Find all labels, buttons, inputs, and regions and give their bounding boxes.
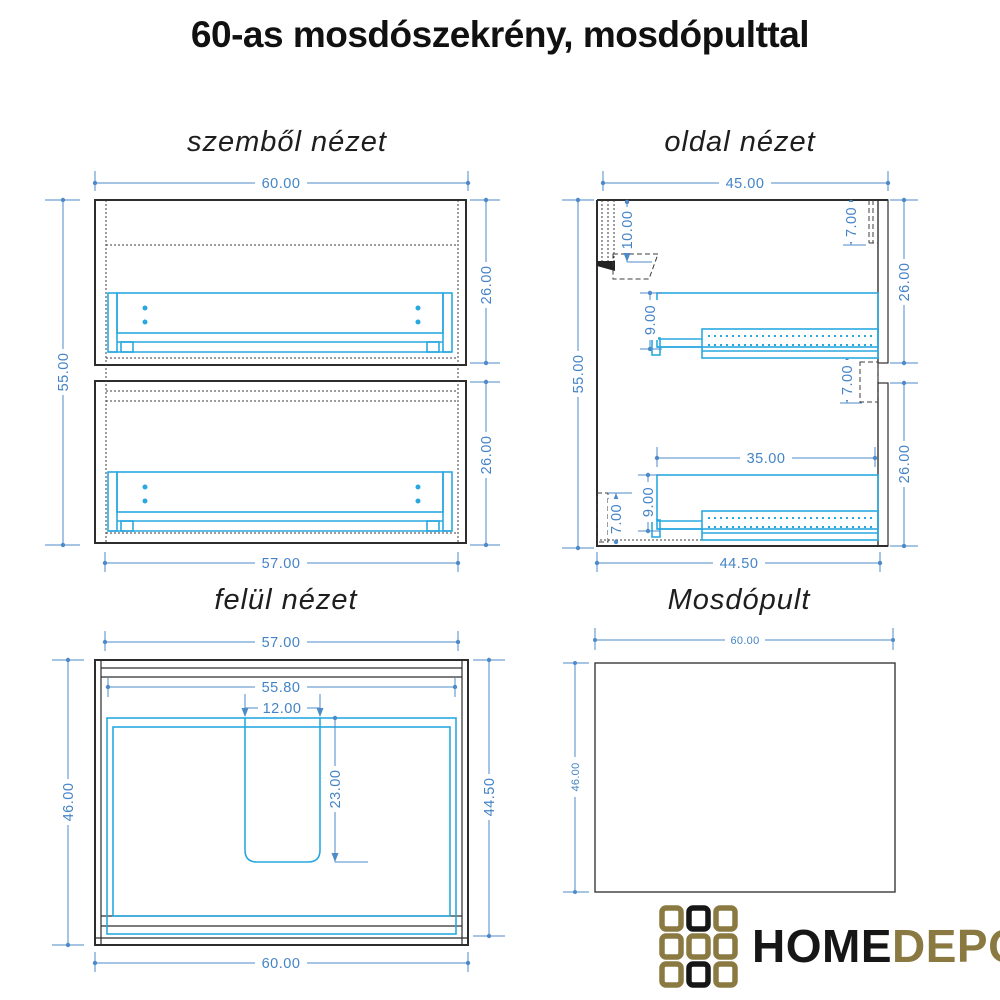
front-dim-width-bottom: 57.00 bbox=[103, 552, 460, 572]
side-dim-bottom-inset: 7.00 bbox=[608, 493, 632, 544]
svg-text:26.00: 26.00 bbox=[479, 436, 495, 475]
page: 60-as mosdószekrény, mosdópulttal szembő… bbox=[0, 0, 1000, 1000]
top-drawer-inner bbox=[113, 727, 450, 916]
top-drawer-outer bbox=[107, 718, 456, 934]
front-view-drawing: 60.00 55.00 26.00 bbox=[45, 171, 500, 572]
side-dim-top-inset: 7.00 bbox=[843, 200, 866, 245]
svg-text:9.00: 9.00 bbox=[643, 305, 659, 335]
svg-text:23.00: 23.00 bbox=[328, 770, 344, 809]
counter-view-drawing: 60.00 46.00 bbox=[563, 628, 895, 894]
top-dim-cutout-width: 12.00 bbox=[242, 694, 324, 717]
side-dim-height-left: 55.00 bbox=[562, 198, 594, 550]
logo-text: HOMEDEPO bbox=[752, 919, 1000, 973]
svg-text:46.00: 46.00 bbox=[570, 762, 582, 791]
counter-dim-width-top: 60.00 bbox=[593, 628, 895, 650]
svg-text:12.00: 12.00 bbox=[263, 701, 302, 717]
svg-text:26.00: 26.00 bbox=[479, 266, 495, 305]
svg-text:60.00: 60.00 bbox=[262, 956, 301, 972]
svg-text:44.50: 44.50 bbox=[720, 556, 759, 572]
front-dim-drawer-upper: 26.00 bbox=[470, 198, 500, 365]
top-dim-cutout-depth: 23.00 bbox=[327, 716, 368, 862]
top-view-drawing: 57.00 55.80 12.00 bbox=[52, 631, 505, 972]
top-dim-width-top: 57.00 bbox=[103, 631, 460, 651]
svg-text:44.50: 44.50 bbox=[482, 778, 498, 817]
svg-text:7.00: 7.00 bbox=[840, 365, 856, 395]
front-lower-drawer-slide bbox=[108, 472, 452, 531]
logo-text-depo: DEPO bbox=[892, 920, 1000, 972]
side-upper-drawer bbox=[652, 293, 878, 358]
svg-text:46.00: 46.00 bbox=[61, 783, 77, 822]
front-upper-carcass bbox=[95, 200, 466, 365]
counter-slab bbox=[595, 663, 895, 892]
svg-text:57.00: 57.00 bbox=[262, 635, 301, 651]
logo-grid-icon bbox=[658, 904, 739, 988]
front-upper-drawer-slide bbox=[108, 293, 452, 352]
svg-text:9.00: 9.00 bbox=[641, 487, 657, 517]
svg-text:57.00: 57.00 bbox=[262, 556, 301, 572]
front-dim-drawer-lower: 26.00 bbox=[470, 380, 500, 547]
logo-text-home: HOME bbox=[752, 920, 892, 972]
svg-text:55.00: 55.00 bbox=[56, 353, 72, 392]
svg-text:45.00: 45.00 bbox=[726, 176, 765, 192]
side-hanger-bracket bbox=[597, 261, 615, 271]
side-view-drawing: 45.00 55.00 10.00 bbox=[562, 171, 918, 572]
svg-text:60.00: 60.00 bbox=[262, 176, 301, 192]
side-dim-front-lower: 26.00 bbox=[890, 381, 918, 548]
front-lower-carcass bbox=[95, 381, 466, 543]
side-dim-drawer-depth: 35.00 bbox=[655, 447, 877, 467]
side-lower-drawer bbox=[652, 475, 878, 540]
top-dim-inner-width: 55.80 bbox=[106, 677, 457, 697]
front-dim-height-left: 55.00 bbox=[45, 198, 80, 547]
svg-text:26.00: 26.00 bbox=[897, 263, 913, 302]
side-dim-slide-upper: 9.00 bbox=[640, 291, 662, 351]
side-dim-hanger-offset: 10.00 bbox=[619, 200, 652, 262]
technical-drawing: 60.00 55.00 26.00 bbox=[0, 0, 1000, 1000]
front-dim-width-top: 60.00 bbox=[93, 171, 470, 192]
svg-text:10.00: 10.00 bbox=[620, 211, 636, 250]
svg-text:55.00: 55.00 bbox=[571, 355, 587, 394]
svg-text:7.00: 7.00 bbox=[609, 504, 625, 534]
svg-text:60.00: 60.00 bbox=[730, 635, 759, 647]
svg-text:55.80: 55.80 bbox=[262, 680, 301, 696]
svg-text:35.00: 35.00 bbox=[747, 451, 786, 467]
svg-text:7.00: 7.00 bbox=[844, 207, 860, 237]
side-hanger-outline bbox=[613, 254, 658, 279]
top-siphon-cutout bbox=[245, 718, 320, 862]
svg-text:26.00: 26.00 bbox=[897, 445, 913, 484]
logo: HOMEDEPO bbox=[658, 904, 1000, 988]
side-lower-drawer-front bbox=[878, 383, 888, 546]
side-dim-front-upper: 26.00 bbox=[890, 198, 918, 365]
side-upper-drawer-front bbox=[878, 200, 888, 363]
side-dim-depth-top: 45.00 bbox=[601, 171, 890, 192]
top-dim-width-bottom: 60.00 bbox=[93, 952, 470, 972]
side-dim-depth-bottom: 44.50 bbox=[595, 552, 882, 572]
side-dim-mid-inset: 7.00 bbox=[839, 359, 862, 403]
top-dim-depth-left: 46.00 bbox=[52, 658, 84, 947]
top-dim-depth-right: 44.50 bbox=[473, 658, 505, 938]
counter-dim-depth-left: 46.00 bbox=[563, 661, 589, 894]
